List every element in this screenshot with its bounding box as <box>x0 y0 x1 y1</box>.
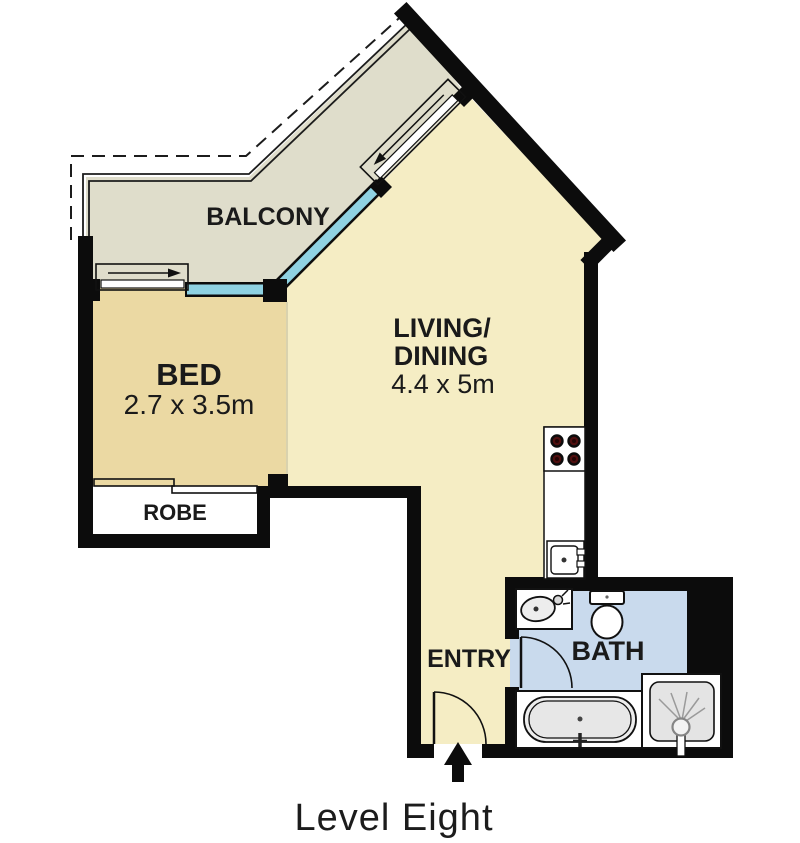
toilet-icon <box>590 591 624 639</box>
window-glass-bed <box>187 285 266 295</box>
robe-label: ROBE <box>143 500 207 525</box>
bed-dimensions: 2.7 x 3.5m <box>124 389 255 420</box>
bed-window-post-right <box>263 279 287 302</box>
kitchen-wall <box>584 252 598 591</box>
living-label-line2: DINING <box>394 341 489 371</box>
living-label-line1: LIVING/ <box>393 313 491 343</box>
burner-center <box>572 457 576 461</box>
living-bottom-wall <box>268 486 421 498</box>
toilet-bowl <box>592 606 623 639</box>
stove-icon <box>544 427 585 471</box>
living-dimensions: 4.4 x 5m <box>391 369 495 399</box>
plan-title: Level Eight <box>294 797 493 839</box>
kitchen-sink-icon <box>547 541 585 578</box>
sink-tap <box>577 549 585 555</box>
bathtub-drain <box>578 717 583 722</box>
basin-tap <box>554 596 563 605</box>
bath-label: BATH <box>572 636 645 666</box>
entry-left-wall <box>407 489 421 758</box>
shower-drain <box>673 719 690 736</box>
bed-label: BED <box>156 357 221 392</box>
burner-center <box>572 439 576 443</box>
toilet-button <box>605 595 608 598</box>
bed-opening-post-bottom <box>268 474 288 498</box>
floor-plan-drawing: BALCONY BED 2.7 x 3.5m LIVING/ DINING 4.… <box>0 0 800 843</box>
sink-drain <box>562 558 567 563</box>
entry-arrow-stem <box>452 765 464 782</box>
robe-bottom-wall <box>78 534 270 548</box>
kitchen <box>544 427 585 579</box>
sliding-door-panel <box>101 280 184 288</box>
floor-plan-page: BALCONY BED 2.7 x 3.5m LIVING/ DINING 4.… <box>0 0 800 843</box>
balcony-label: BALCONY <box>206 203 330 231</box>
burner-center <box>555 457 559 461</box>
basin-icon <box>516 589 572 629</box>
burner-center <box>555 439 559 443</box>
sink-tap <box>577 561 585 567</box>
basin-drain <box>534 607 539 612</box>
bathtub-icon <box>516 691 644 748</box>
shower-icon <box>642 674 721 756</box>
entry-label: ENTRY <box>427 645 511 673</box>
basin-tap-handle <box>563 603 570 604</box>
